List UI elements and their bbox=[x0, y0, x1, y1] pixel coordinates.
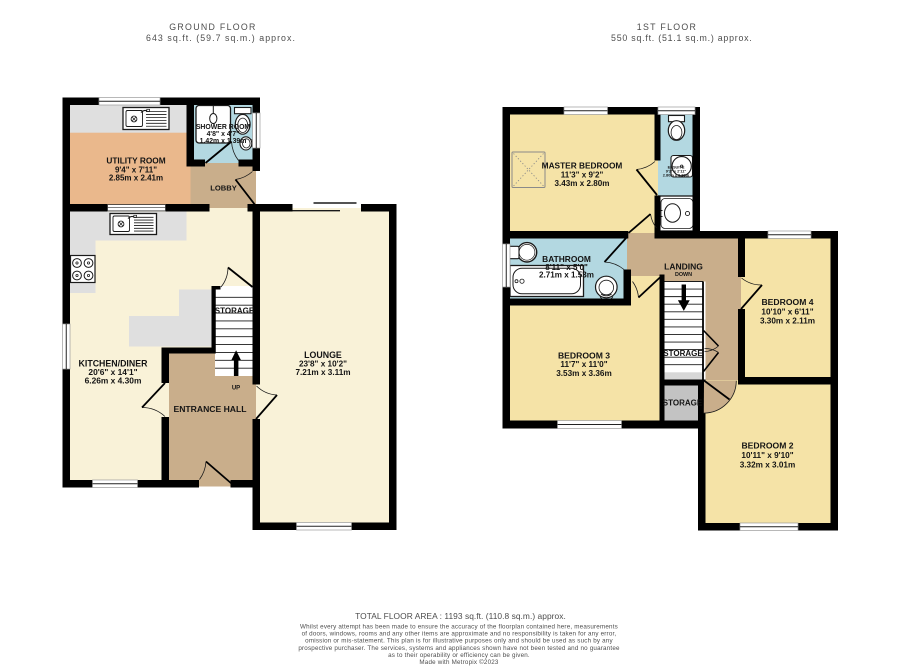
svg-text:10'11" x 9'10": 10'11" x 9'10" bbox=[741, 451, 793, 460]
svg-text:ENTRANCE HALL: ENTRANCE HALL bbox=[173, 404, 246, 414]
svg-text:4'8" x 4'7": 4'8" x 4'7" bbox=[207, 131, 240, 138]
svg-text:GROUND FLOOR: GROUND FLOOR bbox=[169, 22, 256, 32]
svg-text:Whilst every attempt has been: Whilst every attempt has been made to en… bbox=[300, 624, 618, 631]
svg-text:DOWN: DOWN bbox=[675, 272, 692, 278]
svg-text:omission or mis-statement. Thi: omission or mis-statement. This plan is … bbox=[305, 638, 613, 645]
svg-text:7.21m x 3.11m: 7.21m x 3.11m bbox=[295, 368, 350, 377]
svg-text:10'10" x 6'11": 10'10" x 6'11" bbox=[761, 307, 813, 316]
svg-text:of doors, windows, rooms and a: of doors, windows, rooms and any other i… bbox=[302, 631, 617, 638]
svg-text:6.26m x 4.30m: 6.26m x 4.30m bbox=[85, 375, 142, 385]
svg-text:1ST FLOOR: 1ST FLOOR bbox=[637, 22, 697, 32]
svg-text:LANDING: LANDING bbox=[664, 261, 703, 271]
svg-text:TOTAL FLOOR AREA : 1193 sq.ft.: TOTAL FLOOR AREA : 1193 sq.ft. (110.8 sq… bbox=[355, 611, 566, 621]
svg-text:2.71m x 1.53m: 2.71m x 1.53m bbox=[539, 271, 594, 280]
svg-text:3.32m x 3.01m: 3.32m x 3.01m bbox=[740, 460, 796, 469]
svg-text:BEDROOM 3: BEDROOM 3 bbox=[558, 351, 610, 361]
svg-text:STORAGE: STORAGE bbox=[663, 399, 703, 408]
svg-text:UTILITY ROOM: UTILITY ROOM bbox=[106, 156, 165, 166]
svg-text:2.85m x 2.41m: 2.85m x 2.41m bbox=[109, 174, 163, 183]
svg-text:prospective purchaser. The ser: prospective purchaser. The services, sys… bbox=[298, 645, 620, 652]
svg-text:STORAGE: STORAGE bbox=[663, 349, 703, 358]
svg-text:3.53m x 3.36m: 3.53m x 3.36m bbox=[556, 369, 612, 378]
svg-text:1.42m x 1.39m: 1.42m x 1.39m bbox=[200, 138, 247, 145]
svg-text:SHOWER ROOM: SHOWER ROOM bbox=[196, 124, 251, 131]
svg-text:643 sq.ft. (59.7 sq.m.) approx: 643 sq.ft. (59.7 sq.m.) approx. bbox=[146, 33, 296, 43]
svg-text:550 sq.ft. (51.1 sq.m.) approx: 550 sq.ft. (51.1 sq.m.) approx. bbox=[611, 33, 753, 43]
svg-text:LOBBY: LOBBY bbox=[210, 184, 237, 193]
svg-text:UP: UP bbox=[232, 385, 240, 391]
svg-text:11'3" x 9'2": 11'3" x 9'2" bbox=[561, 170, 604, 179]
svg-text:STORAGE: STORAGE bbox=[215, 307, 255, 316]
svg-text:as to their operability or eff: as to their operability or efficiency ca… bbox=[388, 652, 530, 659]
svg-text:2.80m x 0.89m: 2.80m x 0.89m bbox=[663, 172, 690, 177]
svg-text:Made with Metropix ©2023: Made with Metropix ©2023 bbox=[419, 659, 499, 666]
svg-text:BEDROOM 4: BEDROOM 4 bbox=[761, 297, 813, 307]
svg-text:BEDROOM 2: BEDROOM 2 bbox=[741, 441, 793, 451]
svg-text:3.43m x 2.80m: 3.43m x 2.80m bbox=[555, 179, 610, 188]
svg-text:MASTER BEDROOM: MASTER BEDROOM bbox=[542, 161, 623, 171]
svg-text:3.30m x 2.11m: 3.30m x 2.11m bbox=[760, 317, 815, 326]
